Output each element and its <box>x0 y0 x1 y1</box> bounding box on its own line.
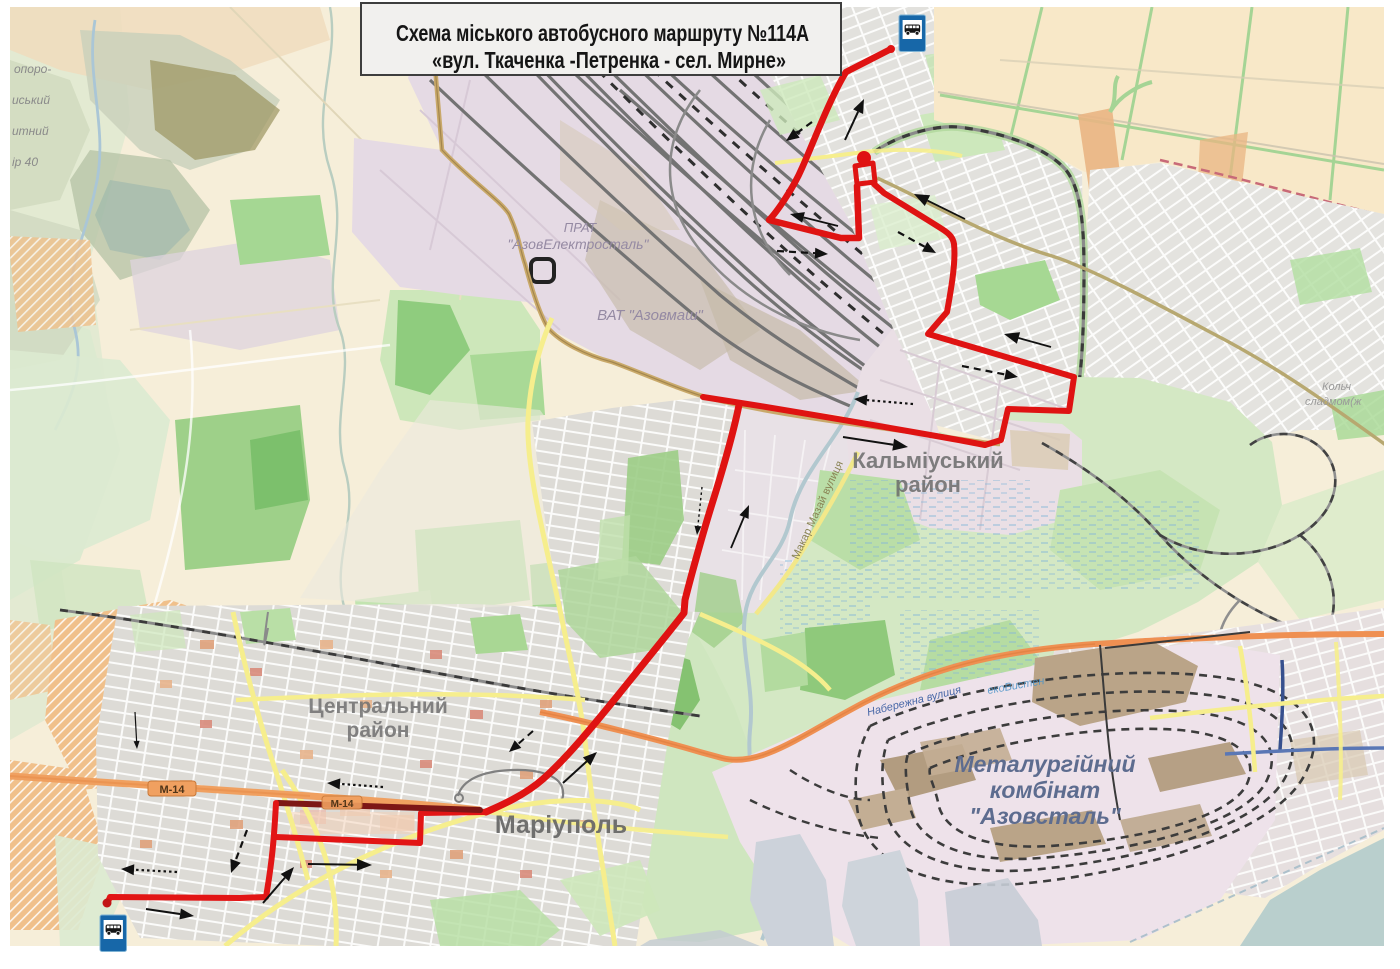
svg-text:Центральний: Центральний <box>308 695 448 718</box>
svg-text:ір 40: ір 40 <box>12 155 38 169</box>
svg-text:ПРАТ: ПРАТ <box>564 220 597 235</box>
svg-text:Металургійний: Металургійний <box>954 751 1135 777</box>
svg-text:иський: иський <box>12 93 50 107</box>
svg-text:М-14: М-14 <box>331 799 354 810</box>
svg-text:район: район <box>347 719 410 742</box>
svg-text:ВАТ "Азовмаш": ВАТ "Азовмаш" <box>597 307 703 324</box>
svg-text:комбінат: комбінат <box>990 777 1101 803</box>
svg-text:район: район <box>895 472 961 497</box>
svg-text:итний: итний <box>12 124 49 138</box>
svg-text:"Азовсталь": "Азовсталь" <box>969 803 1122 829</box>
svg-text:сладмом(ж: сладмом(ж <box>1305 396 1362 408</box>
svg-text:"АзовЕлектросталь": "АзовЕлектросталь" <box>508 236 650 252</box>
svg-text:опоро-: опоро- <box>14 62 51 76</box>
svg-text:Маріуполь: Маріуполь <box>495 811 627 839</box>
svg-text:Кольч: Кольч <box>1322 381 1351 393</box>
svg-text:Кальміуський: Кальміуський <box>852 448 1003 473</box>
svg-text:«вул. Ткаченка -Петренка - сел: «вул. Ткаченка -Петренка - сел. Мирне» <box>432 47 786 73</box>
svg-text:М-14: М-14 <box>159 784 185 796</box>
svg-text:Схема міського автобусного мар: Схема міського автобусного маршруту №114… <box>396 20 809 46</box>
